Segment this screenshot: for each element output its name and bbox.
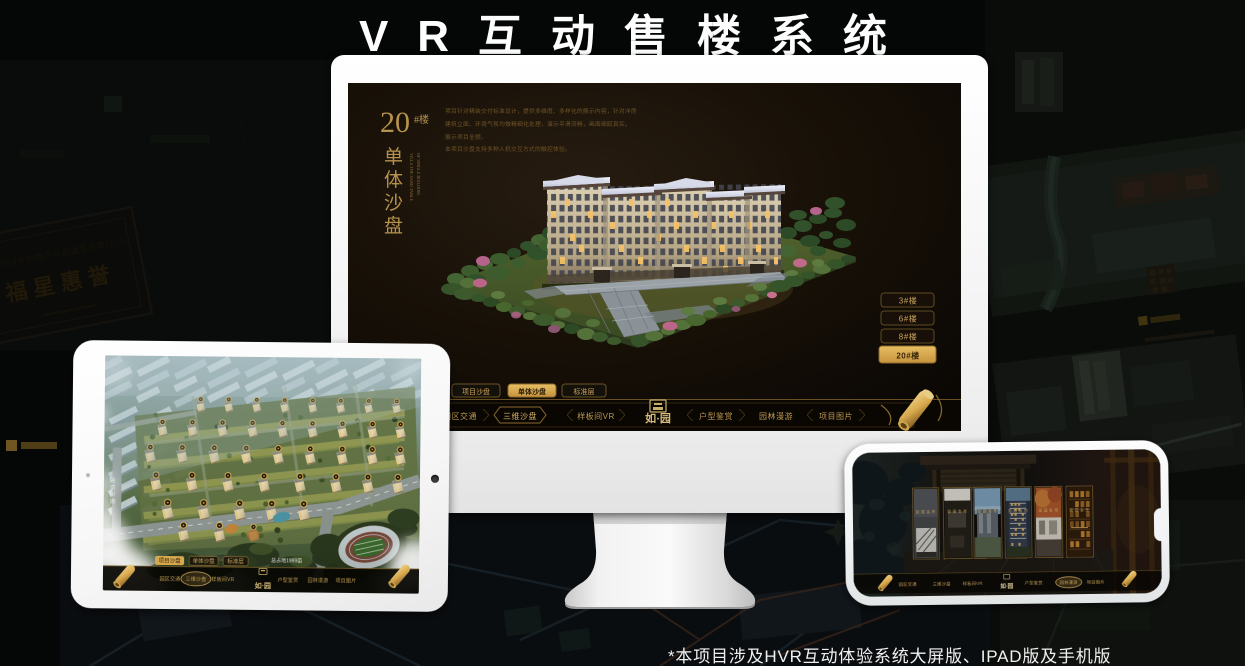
svg-text:标准层: 标准层 xyxy=(227,557,244,565)
svg-text:如 园 会 所: 如 园 会 所 xyxy=(947,508,967,513)
svg-text:如 园 会 所: 如 园 会 所 xyxy=(1070,507,1090,512)
svg-text:盘: 盘 xyxy=(384,215,403,237)
svg-text:项目图片: 项目图片 xyxy=(819,411,853,421)
svg-text:如 园 会 所: 如 园 会 所 xyxy=(916,509,936,514)
svg-text:展示项目全貌。: 展示项目全貌。 xyxy=(445,133,487,141)
svg-text:如·园: 如·园 xyxy=(1000,582,1013,590)
svg-text:如·园: 如·园 xyxy=(255,581,271,590)
svg-text:单: 单 xyxy=(384,146,403,168)
svg-text:3#楼: 3#楼 xyxy=(899,296,917,306)
svg-text:8#楼: 8#楼 xyxy=(899,332,917,342)
svg-text:20#楼: 20#楼 xyxy=(896,351,919,361)
svg-text:6#楼: 6#楼 xyxy=(899,314,917,324)
svg-text:建筑立面、环境气氛均做精细化处理，演示平滑流畅，画面细腻真实: 建筑立面、环境气氛均做精细化处理，演示平滑流畅，画面细腻真实。 xyxy=(445,120,631,128)
svg-text:样板间VR: 样板间VR xyxy=(577,411,615,421)
svg-text:园林漫游: 园林漫游 xyxy=(307,577,328,584)
svg-text:项目针对精装交付标准设计，提供多维度、多样化的展示内容，针对: 项目针对精装交付标准设计，提供多维度、多样化的展示内容，针对洋房 xyxy=(445,107,637,115)
svg-text:园林漫游: 园林漫游 xyxy=(759,411,793,421)
svg-text:如·园: 如·园 xyxy=(645,411,671,425)
svg-text:#楼: #楼 xyxy=(414,113,429,126)
svg-text:沙: 沙 xyxy=(384,193,403,214)
svg-text:如 园 会 所: 如 园 会 所 xyxy=(1039,507,1059,512)
svg-text:如 园 会 所: 如 园 会 所 xyxy=(978,508,998,513)
svg-text:体: 体 xyxy=(384,169,403,191)
svg-text:样板间VR: 样板间VR xyxy=(211,576,234,583)
svg-text:户型鉴赏: 户型鉴赏 xyxy=(277,577,298,584)
svg-text:单体沙盘: 单体沙盘 xyxy=(518,387,546,396)
svg-text:总占地1999亩: 总占地1999亩 xyxy=(271,557,302,564)
svg-text:三维沙盘: 三维沙盘 xyxy=(503,411,537,421)
svg-text:项目图片: 项目图片 xyxy=(335,577,356,584)
svg-text:项目沙盘: 项目沙盘 xyxy=(462,387,490,396)
svg-text:项目沙盘: 项目沙盘 xyxy=(159,556,182,564)
svg-text:标准层: 标准层 xyxy=(574,387,595,396)
svg-text:VILLA THE SAND TABLE: VILLA THE SAND TABLE xyxy=(409,153,414,201)
svg-text:20: 20 xyxy=(380,106,410,139)
svg-text:如 园 会 所: 如 园 会 所 xyxy=(1008,508,1028,513)
svg-text:OF SINGLE BUILDING: OF SINGLE BUILDING xyxy=(416,153,421,196)
svg-text:户型鉴赏: 户型鉴赏 xyxy=(699,411,733,421)
svg-text:单体沙盘: 单体沙盘 xyxy=(193,557,216,565)
svg-text:本项目沙盘支持多种人机交互方式的触控体验。: 本项目沙盘支持多种人机交互方式的触控体验。 xyxy=(445,145,571,153)
svg-text:园区交通: 园区交通 xyxy=(159,575,180,582)
